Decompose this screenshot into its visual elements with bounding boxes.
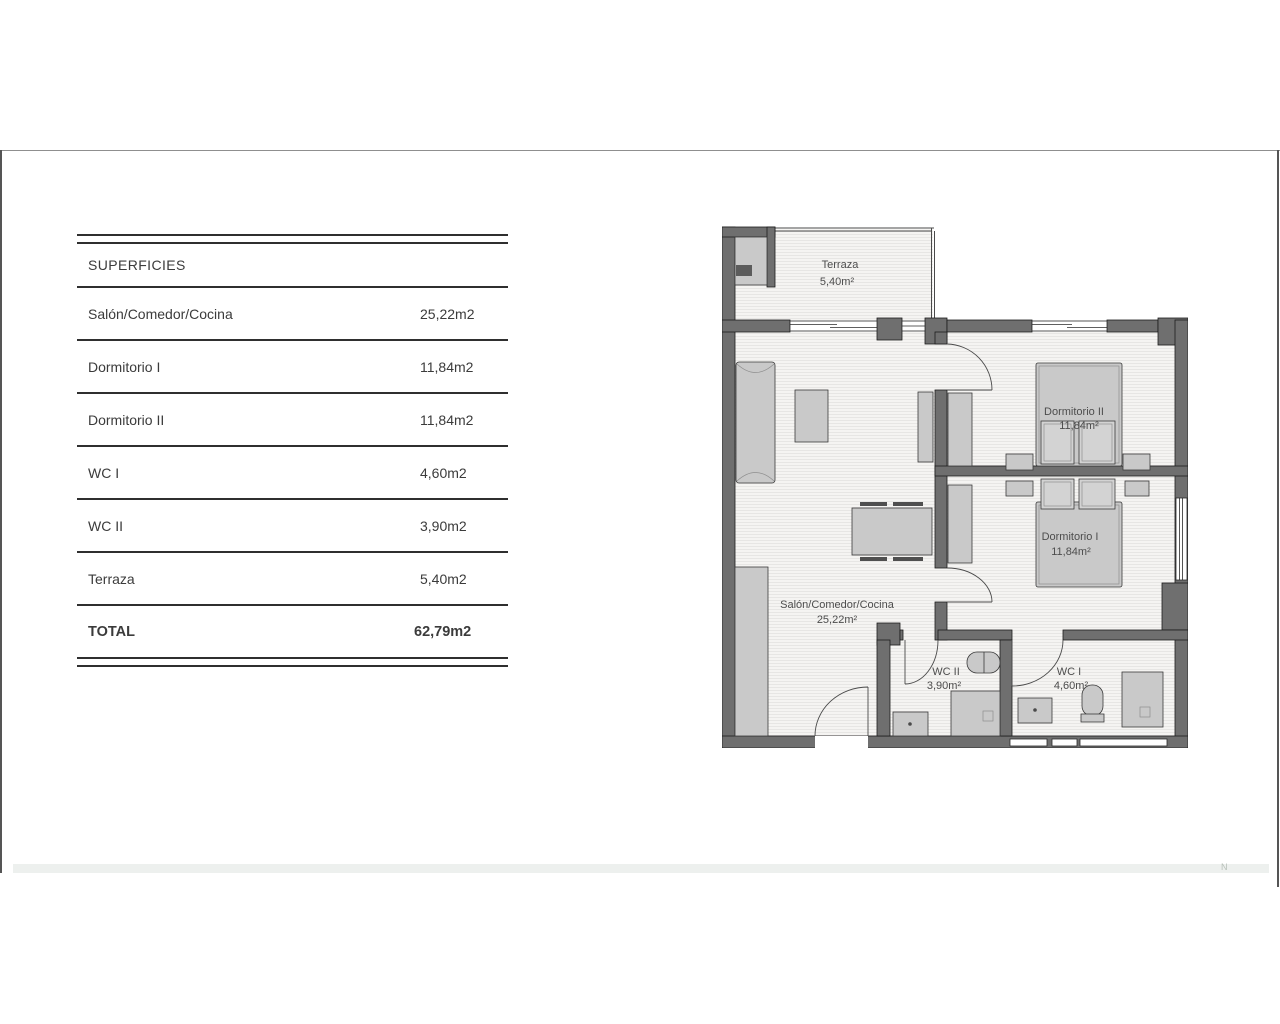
dormitorio2-area: 11,84m²: [1059, 420, 1099, 432]
floorplan-page: { "table": { "header": "SUPERFICIES", "r…: [0, 0, 1280, 1024]
wardrobe-dormitorio1: [948, 485, 972, 563]
dormitorio1-label: Dormitorio I: [1042, 531, 1099, 543]
terraza-closet: [735, 237, 767, 285]
wc2-label: WC II: [932, 666, 960, 678]
sofa: [736, 362, 775, 483]
kitchen-counter: [735, 567, 768, 736]
row-label: Dormitorio II: [88, 412, 164, 428]
wardrobe-dormitorio2: [948, 393, 972, 466]
dormitorio1-window: [1176, 498, 1187, 580]
row-value: 5,40m2: [420, 571, 467, 587]
table-row: WC I 4,60m2: [77, 447, 508, 498]
row-value: 4,60m2: [420, 465, 467, 481]
bottom-window-small: [1052, 739, 1077, 746]
dormitorio2-window: [1032, 321, 1107, 331]
wc1-window: [1080, 739, 1167, 746]
table-row: Terraza 5,40m2: [77, 553, 508, 604]
entrance-opening: [815, 736, 868, 748]
nightstand: [1125, 481, 1149, 496]
sheet-border-top: [0, 150, 1280, 151]
dormitorio2-label: Dormitorio II: [1044, 406, 1104, 418]
nightstand: [1006, 481, 1033, 496]
table-top-rule: [77, 234, 508, 244]
row-label: WC I: [88, 465, 119, 481]
nightstand: [1123, 454, 1150, 470]
wc1-label: WC I: [1057, 666, 1081, 678]
terraza-label: Terraza: [822, 259, 860, 271]
dining-table: [852, 502, 932, 561]
row-label: WC II: [88, 518, 123, 534]
table-row: Dormitorio II 11,84m2: [77, 394, 508, 445]
tv-sideboard: [918, 392, 933, 462]
table-row: Salón/Comedor/Cocina 25,22m2: [77, 288, 508, 339]
row-value: 25,22m2: [420, 306, 474, 322]
row-label: Dormitorio I: [88, 359, 160, 375]
row-label: Terraza: [88, 571, 135, 587]
closet-unit: [736, 265, 752, 276]
nightstand: [1006, 454, 1033, 470]
floor-plan: Terraza 5,40m² Dormitorio II 11,84m² Dor…: [722, 225, 1188, 748]
salon-area: 25,22m²: [817, 614, 858, 626]
shower: [1122, 672, 1163, 727]
table-total-row: TOTAL 62,79m2: [77, 606, 508, 657]
table-header: SUPERFICIES: [77, 244, 508, 286]
north-mark: N: [1221, 862, 1228, 872]
coffee-table: [795, 390, 828, 442]
surfaces-table: SUPERFICIES Salón/Comedor/Cocina 25,22m2…: [77, 234, 508, 667]
table-row: Dormitorio I 11,84m2: [77, 341, 508, 392]
dormitorio1-area: 11,84m²: [1051, 546, 1091, 558]
sheet-border-right: [1277, 150, 1279, 887]
total-label: TOTAL: [88, 624, 135, 640]
row-value: 11,84m2: [420, 412, 473, 428]
total-value: 62,79m2: [414, 624, 471, 640]
wc2-area: 3,90m²: [927, 680, 962, 692]
terrace-slider-window: [790, 321, 877, 331]
wc2-window: [1010, 739, 1047, 746]
row-value: 3,90m2: [420, 518, 467, 534]
terraza-area: 5,40m²: [820, 276, 855, 288]
table-row: WC II 3,90m2: [77, 500, 508, 551]
table-bottom-rule: [77, 657, 508, 667]
sheet-border-left: [0, 150, 2, 873]
toilet: [967, 652, 1000, 673]
row-label: Salón/Comedor/Cocina: [88, 306, 233, 322]
salon-label: Salón/Comedor/Cocina: [780, 599, 895, 611]
sheet-bottom-bar: [13, 864, 1269, 873]
row-value: 11,84m2: [420, 359, 473, 375]
wc1-area: 4,60m²: [1054, 680, 1089, 692]
toilet-tank: [1081, 714, 1104, 722]
